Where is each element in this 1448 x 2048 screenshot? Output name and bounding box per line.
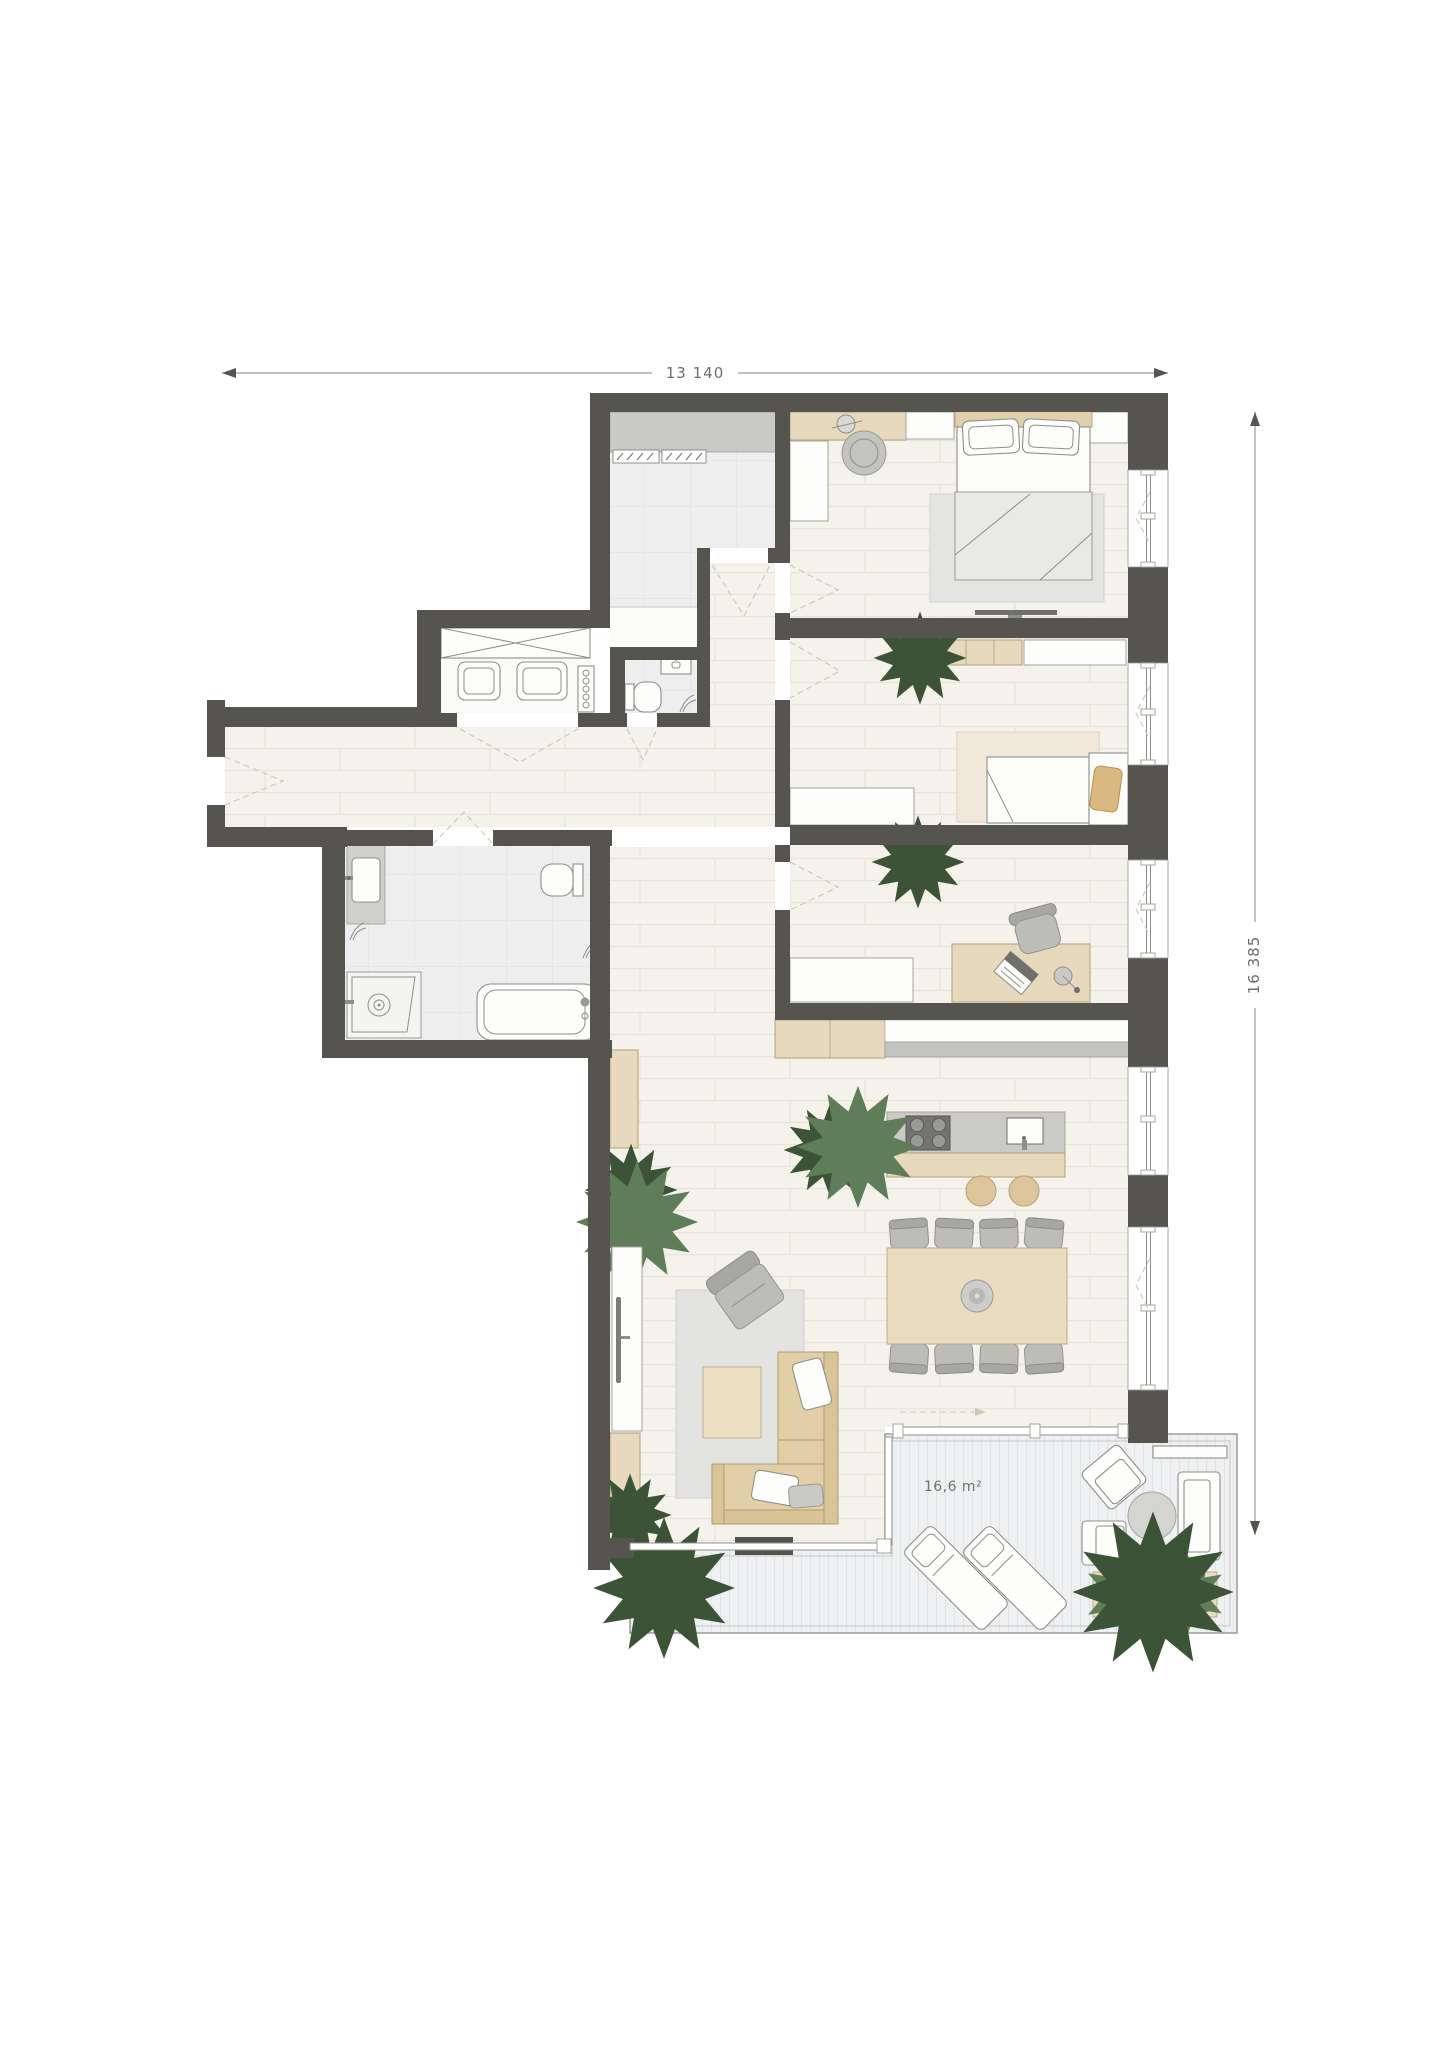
utility-counter (610, 412, 778, 452)
window-icon (1128, 1067, 1168, 1175)
tall-cabinet (610, 1050, 638, 1148)
plant-icon (833, 1122, 883, 1172)
chair-icon (1024, 1217, 1064, 1250)
stool-icon (966, 1176, 996, 1206)
terrace-bench-icon (1153, 1446, 1227, 1458)
tv-icon (616, 1297, 621, 1383)
window-icon (1128, 470, 1168, 567)
chair-icon (979, 1342, 1018, 1373)
floor-plan-svg: 16,6 m² (0, 0, 1448, 2048)
cabinet (906, 412, 954, 439)
glazing-post (877, 1539, 891, 1553)
shower-icon (344, 972, 421, 1038)
dimension-height-label: 16 385 (1245, 936, 1263, 995)
kitchen-counter (885, 1020, 1132, 1042)
double-bed-icon (955, 411, 1092, 580)
bathtub-icon (477, 984, 598, 1040)
blanket (955, 492, 1092, 580)
window-icon (1128, 663, 1168, 765)
kitchen-counter-front (885, 1042, 1132, 1057)
toilet-icon (541, 864, 583, 896)
arrow-icon (1250, 412, 1260, 426)
wardrobe-icon (441, 628, 590, 658)
chair-icon (934, 1218, 974, 1250)
chair-icon (842, 431, 886, 475)
arrow-icon (1250, 1521, 1260, 1535)
chair-icon (934, 1342, 974, 1374)
coffee-table-icon (703, 1367, 761, 1438)
arrow-icon (222, 368, 236, 378)
plant-icon (899, 843, 937, 881)
chair-icon (979, 1218, 1018, 1249)
plant-icon (612, 1197, 662, 1247)
toilet-icon (625, 682, 661, 712)
plant-icon (613, 1498, 647, 1532)
wardrobe-icon (1024, 640, 1126, 665)
planter-icon (1093, 1559, 1217, 1625)
window-icon (1128, 860, 1168, 958)
wardrobe-icon (790, 441, 828, 521)
closet (790, 788, 914, 825)
window-icon (1128, 1227, 1168, 1390)
dryer-icon (517, 662, 567, 700)
glass-wall (630, 1543, 885, 1550)
chair-icon (1024, 1342, 1064, 1375)
sliding-door (893, 1427, 1128, 1435)
arrow-icon (1154, 368, 1168, 378)
heating-manifold-icon (578, 666, 594, 712)
washer-icon (458, 662, 500, 700)
dryer-icon (662, 450, 706, 463)
washer-icon (613, 450, 659, 463)
desk-lamp-icon (837, 415, 855, 433)
terrace-area-label: 16,6 m² (924, 1479, 982, 1495)
stool-icon (1009, 1176, 1039, 1206)
floor-plan-page: 16,6 m² (0, 0, 1448, 2048)
terrace-plant-icon (635, 1559, 693, 1617)
chair-icon (889, 1342, 929, 1375)
dimension-width-label: 13 140 (666, 364, 725, 382)
chair-icon (889, 1218, 929, 1251)
closet (790, 958, 913, 1002)
plant-icon (901, 639, 939, 677)
glass-wall (885, 1437, 892, 1545)
single-bed-icon (987, 753, 1128, 825)
hallway-floor (225, 727, 775, 827)
